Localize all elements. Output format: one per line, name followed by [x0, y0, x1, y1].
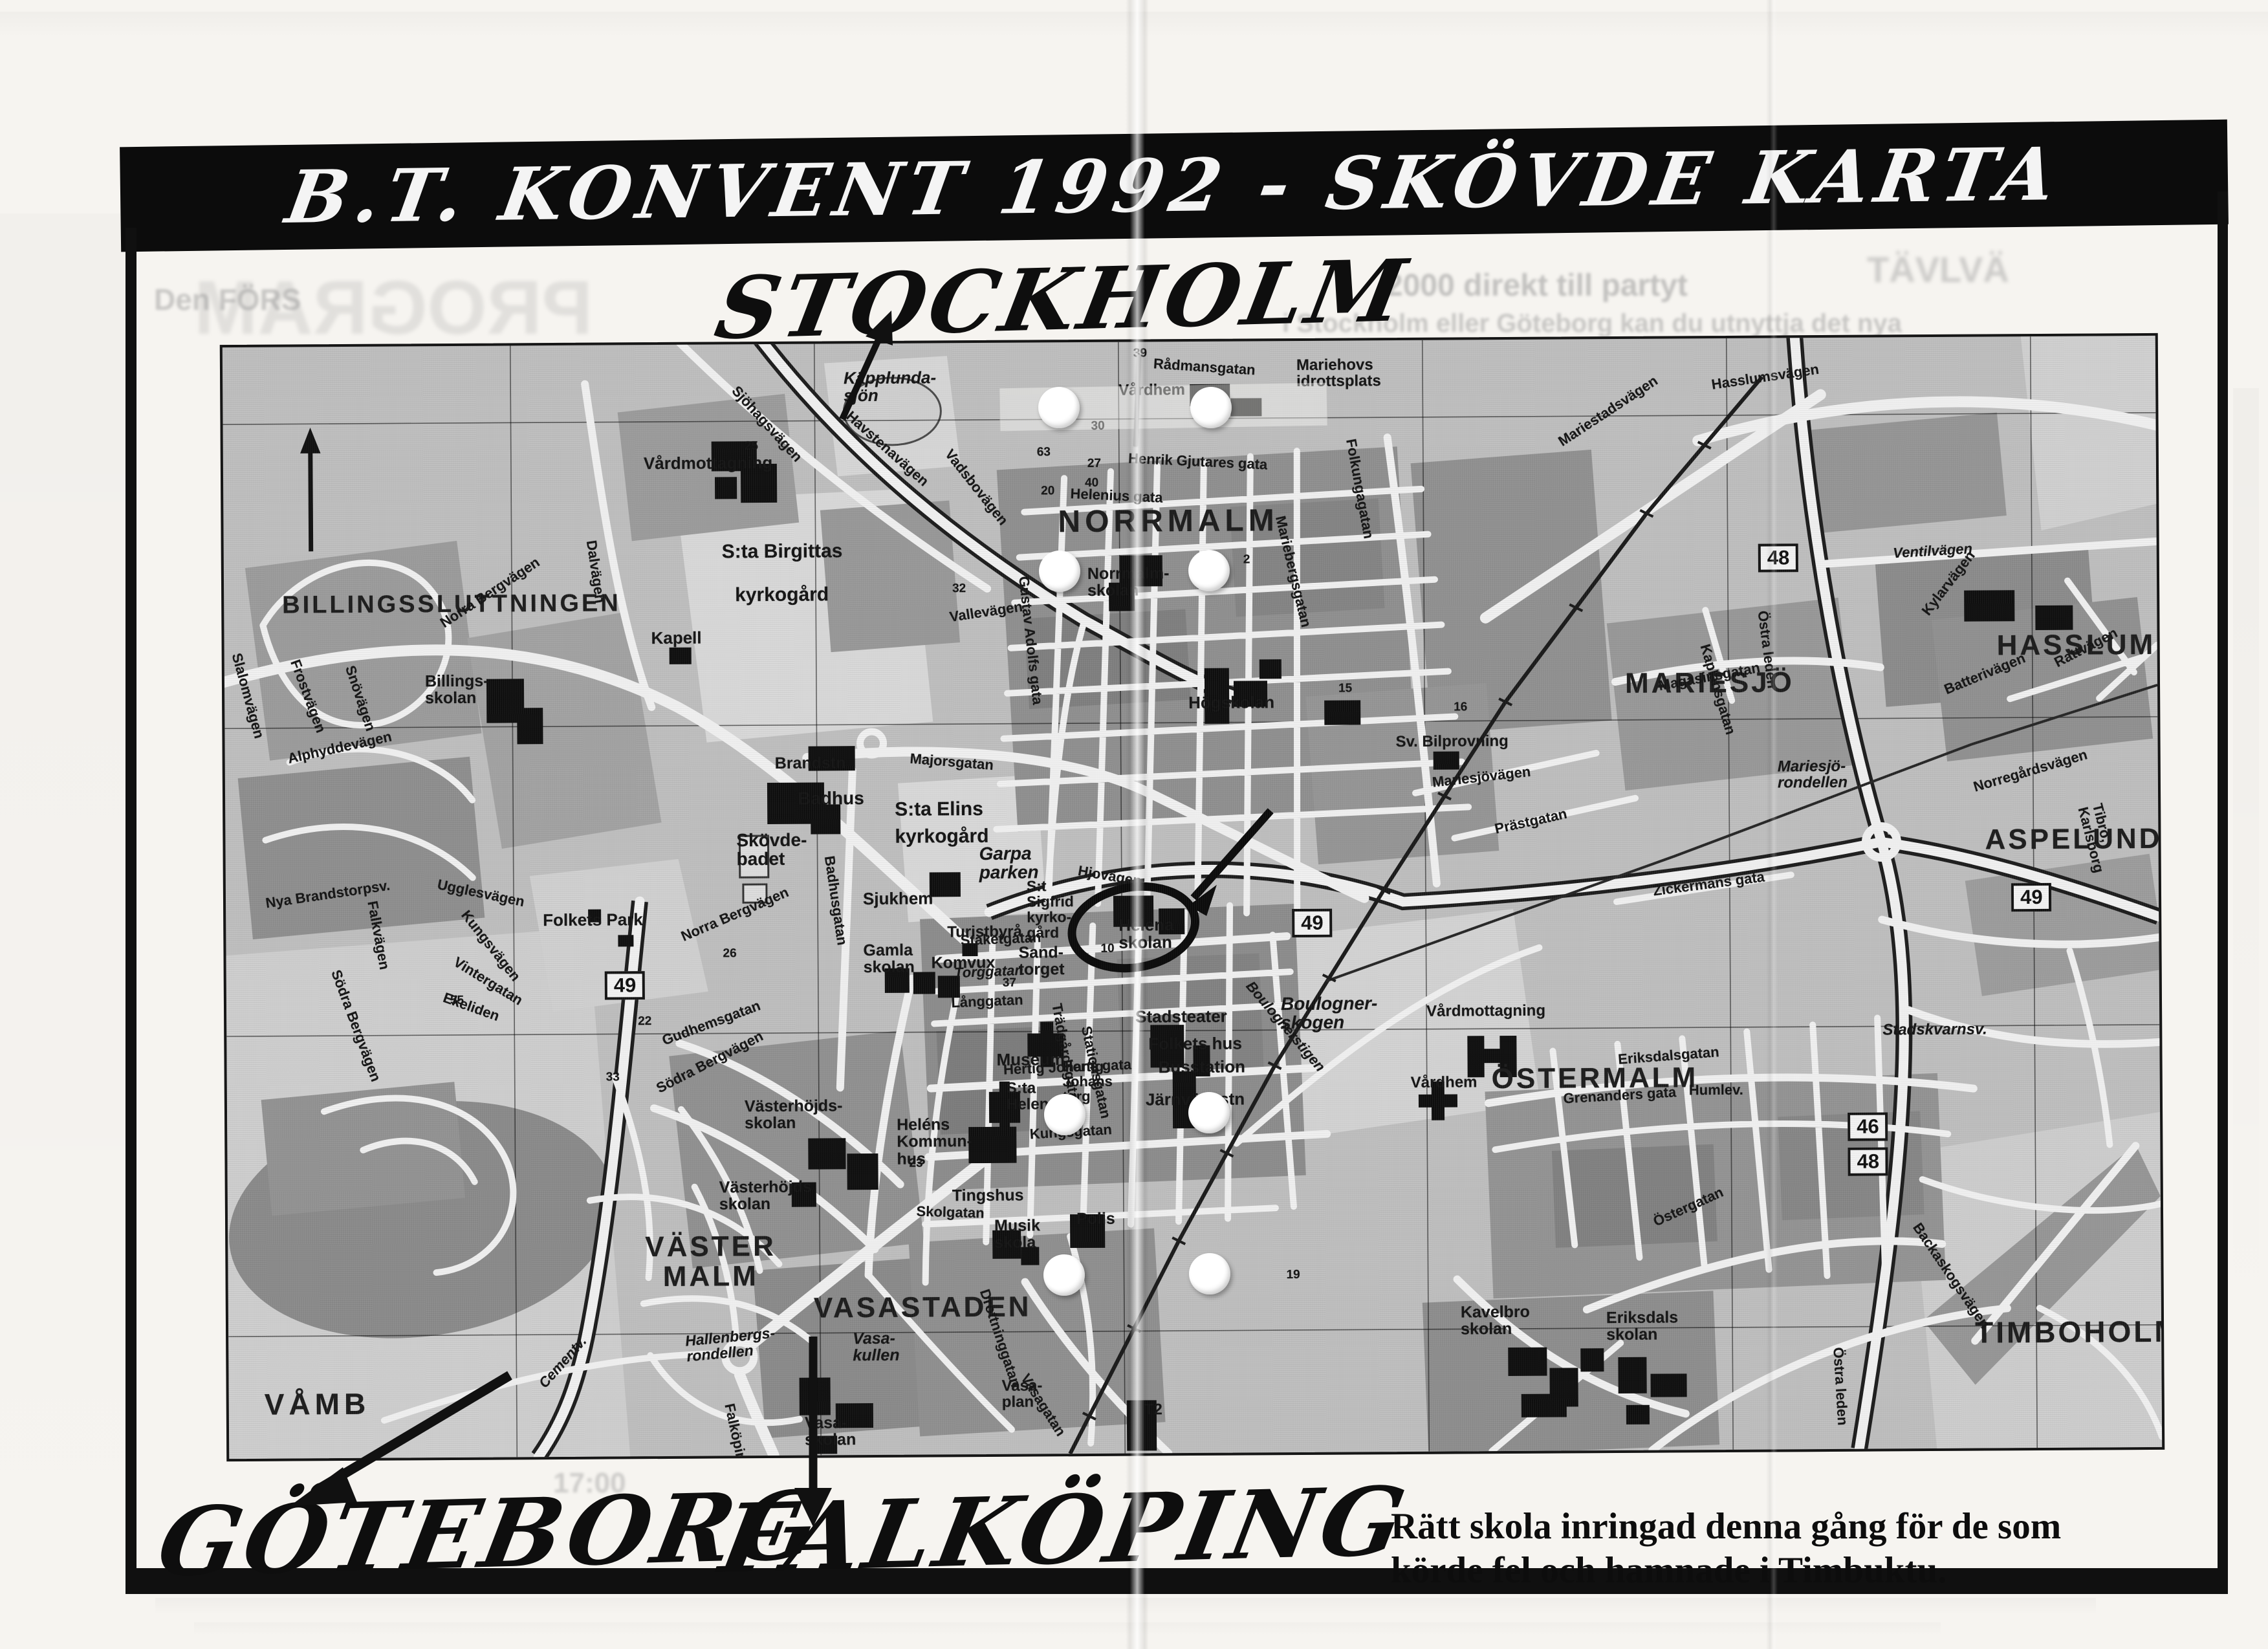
house-number: 37	[1003, 977, 1016, 990]
place-label: Polis	[1076, 1210, 1115, 1228]
house-number: 40	[1085, 477, 1098, 490]
place-label: Västerhöjds- skolan	[745, 1097, 843, 1131]
place-label: Sv. Bilprovning	[1395, 733, 1508, 750]
scanned-page: PROGRAM Den FÖRS 2000 direkt till partyt…	[0, 0, 2268, 1649]
district-label: VÅMB	[265, 1388, 371, 1420]
place-label: T2	[1144, 1401, 1162, 1417]
place-label: Vasa- skolan	[805, 1414, 856, 1448]
street-label: Staketgatan	[960, 930, 1041, 948]
handwritten-falkoping: FALKÖPING	[712, 1466, 1417, 1594]
house-number: 23	[909, 1157, 922, 1170]
frame-right	[2218, 191, 2228, 1594]
place-label: Gamla skolan	[863, 942, 915, 976]
caption: Rätt skola inringad denna gång för de so…	[1391, 1505, 2219, 1593]
punch-hole	[1188, 1092, 1230, 1133]
place-label: Vårdmottagning	[644, 454, 773, 473]
place-label: Helena skolan	[1118, 916, 1174, 952]
punch-hole	[1190, 387, 1232, 428]
place-label: Tingshus	[952, 1187, 1024, 1205]
place-label: Vårdhem	[1411, 1074, 1477, 1091]
place-label: Stadskvarnsv.	[1882, 1021, 1987, 1038]
place-label: Kavelbro skolan	[1461, 1304, 1530, 1338]
punch-hole	[1039, 551, 1080, 592]
place-label: Folkets Park	[543, 911, 643, 929]
place-label: Garpa parken	[979, 844, 1038, 882]
place-label: Folkets hus	[1148, 1035, 1242, 1053]
place-label: Stadsteater	[1135, 1008, 1227, 1026]
punch-hole	[1043, 1254, 1085, 1296]
scan-artifact	[0, 12, 2268, 38]
place-label: Musik skola	[994, 1217, 1040, 1251]
place-label: Vårdmottagning	[1426, 1003, 1545, 1020]
house-number: 27	[1087, 457, 1101, 470]
place-label: Käpplunda- sjön	[844, 369, 936, 404]
page-title: B.T. KONVENT 1992 - SKÖVDE KARTA	[280, 131, 2067, 239]
scan-artifact	[0, 213, 129, 1637]
caption-line1: Rätt skola inringad denna gång för de so…	[1391, 1505, 2219, 1549]
house-number: 33	[606, 1071, 620, 1084]
frame-left	[125, 228, 136, 1594]
place-label: Brandstn	[775, 754, 846, 772]
house-number: 55	[450, 994, 464, 1007]
bleed-through-text: 2000 direkt till partyt	[1386, 268, 1688, 303]
district-label: ASPELUND	[1985, 824, 2162, 855]
punch-hole	[1038, 387, 1080, 428]
caption-line2: körde fel och hamnade i Timbuktu.	[1391, 1549, 2219, 1593]
district-label: NORRMALM	[1058, 505, 1279, 538]
house-number: 2	[1243, 553, 1250, 566]
house-number: 16	[1454, 701, 1467, 714]
place-label: Eriksdals skolan	[1606, 1309, 1679, 1343]
house-number: 26	[723, 947, 736, 960]
house-number: 20	[1041, 485, 1054, 497]
road-badge-49: 49	[2011, 883, 2052, 912]
street-label: Långgatan	[951, 992, 1023, 1010]
place-label: Sand- torget	[1018, 944, 1064, 978]
house-number: 63	[1037, 446, 1051, 459]
place-label: Högskolan	[1188, 693, 1274, 712]
place-label: Busstation	[1159, 1058, 1246, 1076]
place-label: Skövde- badet	[736, 831, 807, 869]
district-label: TIMBOHOLM	[1975, 1316, 2164, 1348]
place-label: Norrmalm- skolan	[1087, 565, 1170, 599]
bleed-through-band	[2233, 388, 2259, 1359]
place-label: Västerhöjds skolan	[719, 1179, 812, 1213]
place-label: Badhus	[798, 789, 864, 808]
district-label: VÄSTER MALM	[645, 1232, 776, 1293]
house-number: 10	[1100, 943, 1114, 956]
road-badge-49: 49	[605, 971, 646, 999]
north-arrow-icon	[301, 428, 321, 551]
place-label: Sjukhem	[863, 890, 933, 908]
house-number: 15	[1338, 682, 1352, 695]
road-badge-46: 46	[1848, 1112, 1888, 1141]
road-badge-48: 48	[1758, 543, 1799, 572]
bleed-through-band	[194, 1622, 1941, 1635]
place-label: kyrkogård	[735, 584, 829, 605]
house-number: 25	[745, 440, 758, 453]
title-banner: B.T. KONVENT 1992 - SKÖVDE KARTA	[120, 120, 2229, 252]
punch-hole	[1188, 550, 1230, 591]
place-label: S:ta Birgittas	[722, 541, 843, 562]
house-number: 32	[952, 582, 966, 595]
place-label: Heléns Kommun- hus	[897, 1116, 972, 1167]
punch-hole	[1044, 1094, 1085, 1135]
bleed-through-band	[155, 1598, 2096, 1615]
house-number: 22	[638, 1015, 651, 1028]
place-label: Mariesjö- rondellen	[1778, 758, 1848, 791]
road-badge-48: 48	[1848, 1147, 1888, 1175]
place-label: Vasa- kullen	[853, 1330, 900, 1364]
place-label: Kapell	[651, 629, 701, 648]
place-label: S:ta Elins kyrkogård	[895, 796, 989, 851]
house-number: 19	[1287, 1269, 1300, 1282]
road-badge-49: 49	[1292, 909, 1333, 937]
punch-hole	[1189, 1253, 1230, 1294]
place-label: Billings- skolan	[425, 673, 489, 707]
bleed-through-text: TÄVLVÄ	[1867, 248, 2009, 290]
bleed-through-text: Den FÖRS	[154, 282, 301, 317]
street-label: Humlev.	[1689, 1082, 1743, 1098]
city-map: BILLINGSSLUTTNINGEN NORRMALM MARIESJÖ HA…	[220, 333, 2164, 1461]
street-label: Skolgatan	[916, 1204, 985, 1221]
